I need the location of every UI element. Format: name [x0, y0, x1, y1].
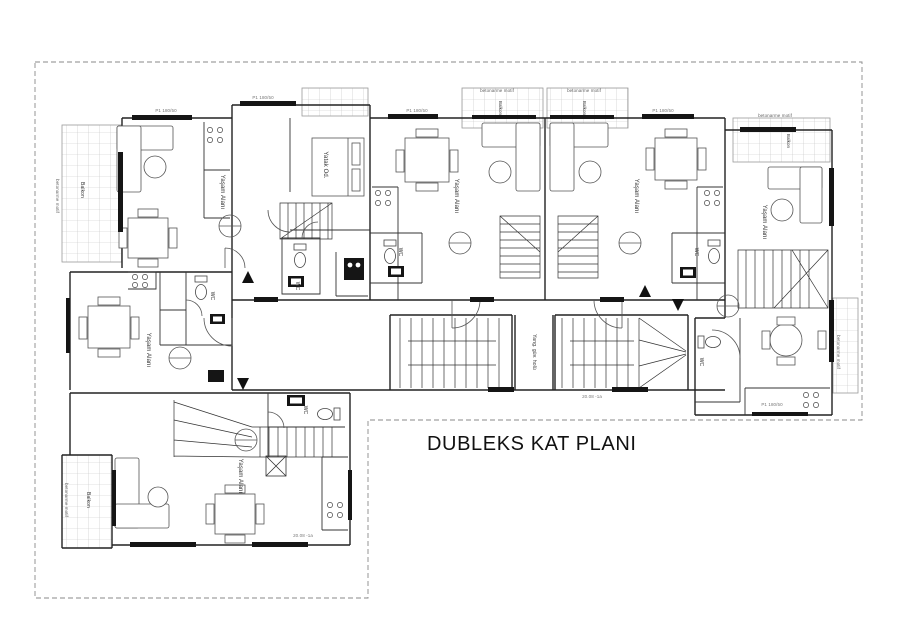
reference-stamps	[169, 215, 739, 451]
stoves	[132, 127, 818, 517]
dark-fixtures	[208, 258, 696, 406]
floor-plan-canvas: Yaşam AlanıYaşam AlanıYaşam AlanıYaşam A…	[0, 0, 900, 636]
plan-title: DUBLEKS KAT PLANI	[427, 433, 637, 456]
floor-plan-drawing	[0, 0, 900, 636]
shaft-box	[266, 456, 286, 476]
dark-fixture-details	[213, 263, 693, 404]
balconies	[62, 88, 858, 548]
furniture	[79, 123, 826, 543]
stairwells	[174, 203, 828, 457]
